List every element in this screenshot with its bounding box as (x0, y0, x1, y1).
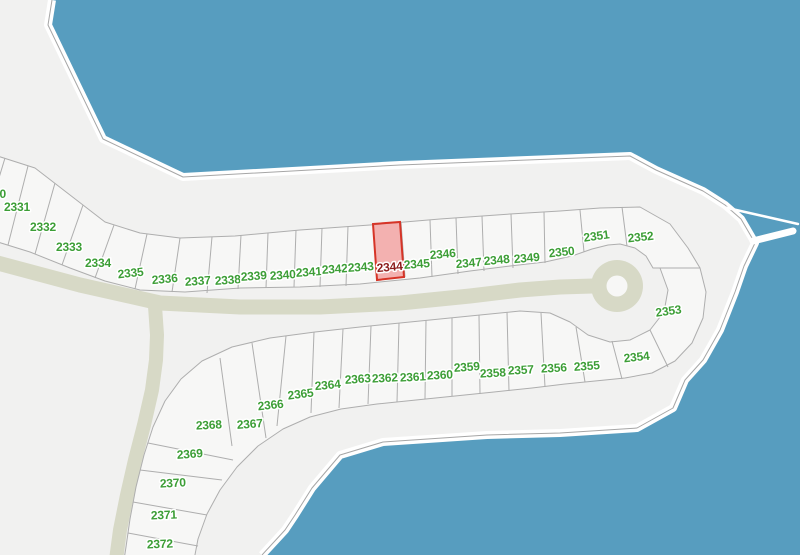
lot-label-2346[interactable]: 2346 (429, 246, 457, 262)
lot-label-2333[interactable]: 2333 (56, 240, 82, 254)
lot-label-2369[interactable]: 2369 (176, 446, 203, 462)
lot-label-2357[interactable]: 2357 (507, 362, 534, 377)
lot-label-2344[interactable]: 2344 (376, 259, 404, 275)
parcel-map[interactable]: 2330233123322333233423352336233723382339… (0, 0, 800, 555)
lot-label-2361[interactable]: 2361 (399, 369, 426, 384)
lot-label-2370[interactable]: 2370 (159, 475, 186, 490)
lot-label-2366[interactable]: 2366 (257, 397, 285, 414)
lot-label-2348[interactable]: 2348 (483, 252, 511, 268)
lot-label-2372[interactable]: 2372 (147, 537, 174, 552)
lot-label-2355[interactable]: 2355 (573, 358, 600, 374)
lot-label-2350[interactable]: 2350 (548, 244, 576, 261)
lot-label-2354[interactable]: 2354 (623, 349, 651, 366)
lot-label-2342[interactable]: 2342 (321, 261, 348, 277)
lot-label-2337[interactable]: 2337 (184, 273, 211, 289)
lot-label-2349[interactable]: 2349 (513, 250, 541, 266)
lot-label-2331[interactable]: 2331 (4, 200, 30, 214)
lot-label-2359[interactable]: 2359 (453, 359, 480, 375)
lot-label-2367[interactable]: 2367 (236, 416, 263, 432)
lot-label-2330[interactable]: 2330 (0, 187, 6, 201)
lot-label-2356[interactable]: 2356 (540, 360, 567, 375)
lot-label-2341[interactable]: 2341 (295, 264, 322, 280)
lot-label-2339[interactable]: 2339 (240, 268, 267, 284)
lot-label-2336[interactable]: 2336 (151, 271, 179, 287)
lot-label-2368[interactable]: 2368 (195, 417, 222, 432)
lot-label-2334[interactable]: 2334 (85, 256, 111, 270)
lot-label-2364[interactable]: 2364 (314, 377, 342, 393)
lot-label-2360[interactable]: 2360 (426, 367, 453, 382)
lot-label-2338[interactable]: 2338 (214, 272, 241, 288)
cul-de-sac-island (607, 276, 628, 297)
lot-label-2343[interactable]: 2343 (347, 259, 374, 275)
lot-label-2371[interactable]: 2371 (151, 508, 178, 523)
lot-label-2358[interactable]: 2358 (479, 365, 506, 380)
lot-label-2347[interactable]: 2347 (455, 255, 483, 271)
lot-label-2352[interactable]: 2352 (627, 229, 655, 246)
lot-label-2340[interactable]: 2340 (269, 267, 296, 283)
lot-label-2335[interactable]: 2335 (117, 265, 145, 282)
parcel-map-canvas[interactable]: 2330233123322333233423352336233723382339… (0, 0, 800, 555)
lot-label-2362[interactable]: 2362 (371, 370, 398, 385)
lot-label-2332[interactable]: 2332 (30, 220, 56, 234)
lot-label-2363[interactable]: 2363 (344, 371, 371, 387)
lot-label-2345[interactable]: 2345 (403, 256, 430, 272)
